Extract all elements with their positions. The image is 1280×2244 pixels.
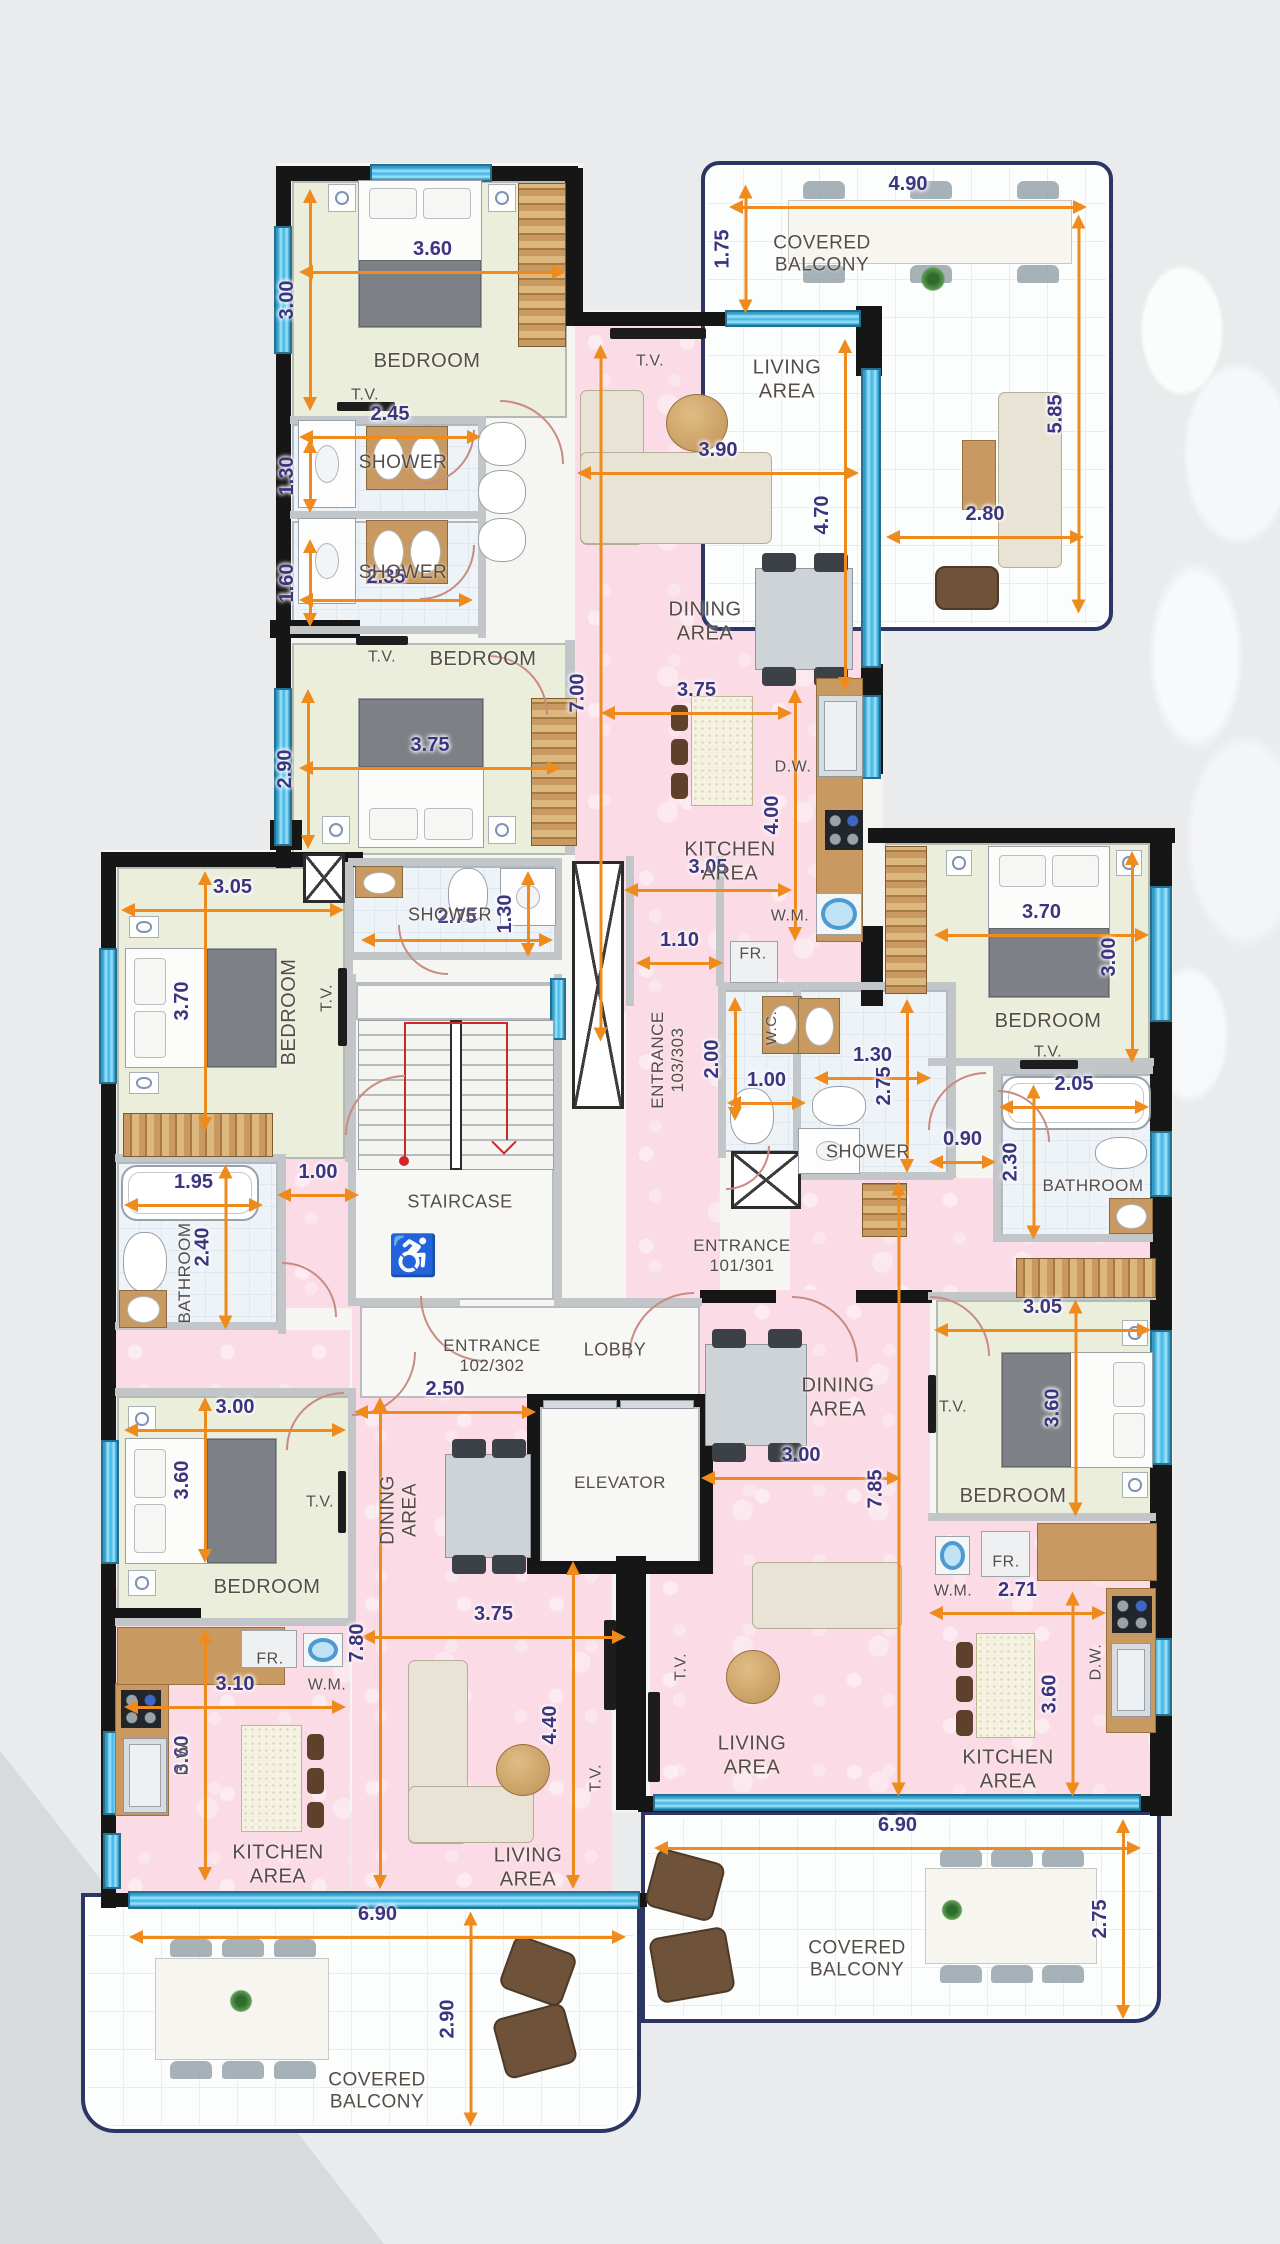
wall-black: [616, 1556, 646, 1810]
dimension-value: 3.60: [1038, 1674, 1061, 1713]
dimension-h: 0.90: [930, 1151, 995, 1173]
outdoor-chair-icon: [274, 2061, 316, 2079]
wardrobe-icon: [1016, 1258, 1156, 1298]
bed-pillow: [369, 188, 417, 219]
room-label: ENTRANCE 101/301: [693, 1236, 791, 1276]
dimension-v: 2.00: [724, 998, 746, 1120]
stair-path-start: [399, 1156, 409, 1166]
wall-gray: [993, 1234, 1153, 1242]
dimension-v: 2.75: [1112, 1820, 1134, 2018]
room-label: W.C.: [763, 1011, 781, 1046]
room-label: FR.: [992, 1554, 1019, 1573]
room-label: T.V.: [588, 1764, 607, 1792]
bed-pillow: [134, 1011, 166, 1058]
dimension-v: 7.80: [369, 1398, 391, 1888]
elevator-door: [620, 1400, 694, 1409]
dimension-value: 1.30: [276, 457, 299, 496]
dimension-value: 3.00: [782, 1444, 821, 1467]
dimension-v: 4.00: [784, 690, 806, 940]
nightstand-icon: [328, 184, 356, 212]
outdoor-chair-icon: [1042, 1965, 1084, 1983]
dimension-value: 2.71: [998, 1579, 1037, 1602]
island-stool-icon: [671, 739, 688, 765]
dining-chair-icon: [762, 553, 796, 572]
stair-rail: [450, 1020, 462, 1170]
dimension-value: 2.45: [371, 403, 410, 426]
room-label: LIVING AREA: [753, 356, 822, 403]
dimension-h: 3.75: [602, 702, 791, 724]
outdoor-chair-icon: [170, 2061, 212, 2079]
room-label: T.V.: [306, 1494, 334, 1513]
dimension-value: 1.30: [494, 895, 517, 934]
nightstand-icon: [946, 850, 972, 876]
wheelchair-icon: ♿: [388, 1236, 438, 1276]
elevator-door: [543, 1400, 617, 1409]
dimension-h: 1.10: [637, 952, 722, 974]
tv-unit-icon: [338, 1471, 346, 1533]
stair-path-line: [404, 1022, 508, 1024]
washer-drum-icon: [821, 898, 857, 930]
kitchen-counter-icon: [1037, 1523, 1157, 1581]
island-stool-icon: [307, 1802, 324, 1828]
dimension-v: 3.60: [1064, 1300, 1086, 1515]
room-label: LIVING AREA: [494, 1844, 563, 1891]
window: [103, 1833, 121, 1889]
bed-pillow: [369, 808, 418, 840]
room-label: BATHROOM: [175, 1223, 195, 1324]
island-stool-icon: [671, 773, 688, 799]
dimension-v: 3.00: [1121, 852, 1143, 1062]
window: [1150, 886, 1172, 1022]
room-label: D.W.: [1088, 1644, 1107, 1681]
nightstand-icon: [129, 1072, 159, 1094]
room-label: BEDROOM: [430, 648, 537, 672]
wall-black: [868, 828, 1175, 843]
outdoor-chair-icon: [940, 1965, 982, 1983]
bed-pillow: [134, 1504, 166, 1553]
armchair-icon: [935, 566, 999, 610]
bed-pillow: [1052, 855, 1100, 887]
room-label: BEDROOM: [995, 1010, 1102, 1034]
stove-icon: [1112, 1596, 1152, 1633]
dimension-value: 3.10: [216, 1673, 255, 1696]
plant-icon: [940, 1898, 964, 1922]
dimension-value: 3.75: [411, 734, 450, 757]
dimension-value: 3.00: [216, 1396, 255, 1419]
dimension-h: 3.75: [362, 1626, 625, 1648]
dimension-value: 1.00: [747, 1069, 786, 1092]
window: [861, 368, 881, 668]
bed-pillow: [1113, 1362, 1145, 1407]
dimension-value: 2.30: [999, 1142, 1022, 1181]
room-label: D.W.: [775, 759, 812, 778]
window: [101, 1440, 119, 1564]
dimension-v: 2.90: [297, 690, 319, 848]
nightstand-icon: [488, 184, 516, 212]
wardrobe-icon: [885, 846, 927, 994]
nightstand-icon: [128, 1570, 156, 1596]
dining-chair-icon: [492, 1439, 526, 1458]
dimension-h: 1.95: [125, 1194, 262, 1216]
room-label: DINING AREA: [669, 598, 742, 645]
kitchen-island-icon: [241, 1725, 302, 1832]
dimension-v: 2.90: [459, 1912, 481, 2125]
dimension-v: 1.30: [299, 440, 321, 512]
dimension-value: 1.30: [853, 1044, 892, 1067]
sink-basin-icon: [127, 1296, 160, 1322]
dimension-h: 1.00: [278, 1184, 358, 1206]
tv-unit-icon: [338, 968, 347, 1046]
bed-pillow: [134, 958, 166, 1005]
sink-basin-icon: [1116, 1204, 1147, 1229]
room-label: T.V.: [351, 387, 379, 406]
nightstand-icon: [488, 816, 516, 844]
room-label: W.M.: [308, 1677, 346, 1696]
shaft-void: [303, 853, 345, 903]
dimension-value: 2.05: [1055, 1073, 1094, 1096]
dimension-v: 7.00: [589, 345, 611, 1040]
dimension-value: 3.70: [171, 982, 194, 1021]
dimension-v: 4.40: [562, 1562, 584, 1888]
dimension-value: 7.80: [346, 1624, 369, 1663]
dimension-v: 1.75: [734, 185, 756, 312]
dimension-h: 2.35: [300, 589, 472, 611]
nightstand-icon: [322, 816, 350, 844]
window: [99, 948, 117, 1084]
dimension-value: 3.75: [474, 1603, 513, 1626]
dining-chair-icon: [452, 1439, 486, 1458]
plant-icon: [228, 1988, 254, 2014]
dimension-v: 4.70: [834, 340, 856, 690]
toilet-icon: [1095, 1137, 1147, 1169]
dimension-v: 3.60: [194, 1630, 216, 1880]
dimension-value: 3.75: [677, 679, 716, 702]
dimension-value: 1.00: [299, 1161, 338, 1184]
toilet-icon: [812, 1086, 866, 1126]
room-label: DINING AREA: [378, 1475, 423, 1545]
dimension-v: 1.60: [299, 540, 321, 626]
room-label: T.V.: [319, 984, 338, 1012]
room-label: T.V.: [673, 1653, 692, 1681]
bed-pillow: [999, 855, 1047, 887]
dining-chair-icon: [492, 1555, 526, 1574]
room-label: ENTRANCE 103/303: [648, 1011, 688, 1109]
dimension-h: 3.90: [578, 462, 858, 484]
outdoor-chair-icon: [222, 2061, 264, 2079]
island-stool-icon: [307, 1768, 324, 1794]
dimension-v: 3.60: [1061, 1592, 1083, 1795]
bed-pillow: [1113, 1413, 1145, 1458]
dimension-v: 5.85: [1067, 215, 1089, 612]
room-label: BEDROOM: [214, 1576, 321, 1600]
vanity-sink-icon: [798, 998, 840, 1054]
room-label: BEDROOM: [278, 959, 302, 1066]
dimension-value: 3.90: [699, 439, 738, 462]
dimension-value: 6.90: [878, 1814, 917, 1837]
room-label: T.V.: [636, 353, 664, 372]
room-label: COVERED BALCONY: [773, 233, 870, 278]
window: [653, 1794, 1141, 1811]
dimension-value: 3.60: [413, 238, 452, 261]
nightstand-icon: [1122, 1472, 1148, 1498]
room-label: FR.: [739, 946, 766, 965]
room-label: FR.: [256, 1651, 283, 1670]
wall-black: [700, 1290, 776, 1303]
dimension-v: 7.85: [887, 1182, 909, 1795]
dimension-value: 1.60: [276, 564, 299, 603]
dimension-value: 1.75: [711, 229, 734, 268]
kitchen-sink-icon: [123, 1738, 167, 1813]
tv-unit-icon: [928, 1375, 936, 1433]
room-label: KITCHEN AREA: [962, 1746, 1053, 1793]
vanity-sink-icon: [1109, 1198, 1153, 1234]
bed-blanket: [207, 949, 276, 1067]
wall-gray: [928, 1513, 1156, 1521]
toilet-icon: [478, 518, 526, 562]
wall-gray: [348, 1388, 356, 1628]
dining-chair-icon: [712, 1443, 746, 1462]
dimension-value: 2.75: [1089, 1900, 1112, 1939]
room-label: ENTRANCE 102/302: [443, 1336, 541, 1376]
dining-chair-icon: [712, 1329, 746, 1348]
room-label: KITCHEN AREA: [684, 838, 775, 885]
dining-chair-icon: [762, 667, 796, 686]
dimension-value: 2.80: [966, 503, 1005, 526]
bed-pillow: [424, 808, 473, 840]
room-label: BEDROOM: [374, 350, 481, 374]
dimension-v: 3.70: [194, 872, 216, 1130]
dimension-h: 3.05: [122, 899, 343, 921]
vanity-sink-icon: [355, 866, 403, 898]
room-label: ELEVATOR: [574, 1473, 666, 1493]
dimension-value: 3.60: [171, 1461, 194, 1500]
room-label: STAIRCASE: [407, 1191, 512, 1212]
island-stool-icon: [956, 1642, 973, 1668]
round-table-icon: [726, 1650, 780, 1704]
dimension-v: 1.30: [517, 872, 539, 956]
island-stool-icon: [956, 1676, 973, 1702]
room-label: T.V.: [368, 649, 396, 668]
room-label: SHOWER: [408, 904, 492, 925]
washing-machine-icon: [816, 893, 862, 935]
dimension-value: 1.10: [660, 929, 699, 952]
room-label: BATHROOM: [1043, 1176, 1144, 1196]
tv-unit-icon: [356, 636, 408, 645]
room-label: W.M.: [771, 908, 809, 927]
washing-machine-icon: [303, 1633, 343, 1667]
dimension-h: 3.60: [300, 261, 565, 283]
washer-drum-icon: [940, 1541, 965, 1570]
round-table-icon: [496, 1744, 550, 1796]
circulation-floor: [356, 984, 554, 1020]
armchair-icon: [648, 1926, 736, 2005]
stair-path-line: [506, 1022, 508, 1140]
dimension-h: 2.80: [887, 526, 1083, 548]
dimension-value: 2.00: [701, 1040, 724, 1079]
vanity-sink-icon: [119, 1290, 167, 1328]
room-label: KITCHEN AREA: [232, 1841, 323, 1888]
dimension-value: 4.90: [889, 173, 928, 196]
dimension-value: 4.40: [539, 1706, 562, 1745]
room-label: W.M.: [934, 1583, 972, 1602]
sofa-icon: [752, 1562, 902, 1629]
dimension-h: 6.90: [655, 1837, 1140, 1859]
island-stool-icon: [307, 1734, 324, 1760]
plant-icon: [918, 266, 948, 292]
toilet-icon: [123, 1232, 167, 1292]
room-label: T.V.: [1034, 1044, 1062, 1063]
dimension-value: 2.90: [436, 1999, 459, 2038]
island-stool-icon: [956, 1710, 973, 1736]
dimension-value: 4.70: [811, 496, 834, 535]
room-label: D.W.: [175, 1739, 194, 1776]
wall-black: [565, 312, 733, 326]
dimension-v: 3.00: [299, 190, 321, 410]
dimension-h: 4.90: [730, 196, 1086, 218]
room-label: COVERED BALCONY: [328, 2070, 425, 2115]
wall-black: [861, 926, 883, 1006]
room-label: COVERED BALCONY: [808, 1938, 905, 1983]
sink-basin-icon: [805, 1007, 834, 1046]
dimension-value: 2.90: [274, 750, 297, 789]
tv-unit-icon: [610, 328, 706, 339]
wall-gray: [115, 1388, 351, 1396]
dimension-h: 3.75: [300, 757, 560, 779]
dimension-value: 3.60: [1041, 1388, 1064, 1427]
outdoor-chair-icon: [1017, 265, 1059, 283]
dimension-value: 7.85: [864, 1469, 887, 1508]
wall-black: [565, 168, 583, 326]
dimension-value: 3.00: [1098, 938, 1121, 977]
outdoor-chair-icon: [991, 1965, 1033, 1983]
kitchen-island-icon: [976, 1633, 1035, 1738]
kitchen-sink-icon: [818, 695, 863, 777]
washer-drum-icon: [308, 1638, 338, 1662]
dining-chair-icon: [452, 1555, 486, 1574]
dimension-v: 2.30: [1022, 1085, 1044, 1238]
stove-icon: [825, 810, 863, 850]
wall-gray: [290, 626, 482, 634]
floor-plan-canvas: 3.602.452.353.753.904.902.803.753.051.10…: [0, 0, 1280, 2244]
dimension-value: 1.95: [174, 1171, 213, 1194]
tv-unit-icon: [648, 1692, 660, 1782]
wall-black: [527, 1561, 713, 1574]
dimension-h: 3.00: [125, 1419, 345, 1441]
dimension-h: 2.45: [300, 426, 480, 448]
dimension-value: 5.85: [1044, 394, 1067, 433]
dimension-value: 2.75: [873, 1067, 896, 1106]
wall-gray: [348, 858, 562, 866]
dimension-v: 2.40: [214, 1165, 236, 1328]
dimension-h: 3.10: [125, 1696, 345, 1718]
dimension-value: 4.00: [761, 796, 784, 835]
dimension-value: 2.50: [426, 1378, 465, 1401]
window: [861, 695, 881, 779]
room-label: T.V.: [939, 1399, 967, 1418]
dimension-value: 0.90: [943, 1128, 982, 1151]
kitchen-counter-icon: [962, 440, 996, 510]
window: [1150, 1131, 1172, 1197]
window: [1150, 1330, 1172, 1465]
bed-pillow: [423, 188, 471, 219]
dimension-value: 3.05: [213, 876, 252, 899]
dimension-h: 6.90: [130, 1926, 625, 1948]
room-label: SHOWER: [359, 562, 448, 584]
kitchen-sink-icon: [1111, 1643, 1151, 1717]
bed-pillow: [134, 1449, 166, 1498]
room-label: BEDROOM: [960, 1485, 1067, 1509]
toilet-icon: [478, 470, 526, 514]
room-label: LIVING AREA: [718, 1732, 787, 1779]
floor-plan-page: 3.602.452.353.753.904.902.803.753.051.10…: [0, 0, 1280, 2244]
dimension-value: 3.05: [1023, 1296, 1062, 1319]
dimension-value: 3.00: [276, 281, 299, 320]
dimension-value: 7.00: [566, 673, 589, 712]
room-label: LOBBY: [584, 1339, 647, 1360]
dining-table-icon: [445, 1454, 531, 1558]
bed-blanket: [207, 1439, 276, 1563]
pink-floor-area: [115, 1330, 350, 1392]
washing-machine-icon: [935, 1536, 970, 1575]
room-label: DINING AREA: [802, 1374, 875, 1421]
room-label: SHOWER: [359, 452, 448, 474]
dimension-value: 6.90: [358, 1903, 397, 1926]
dimension-value: 3.70: [1022, 901, 1061, 924]
room-label: SHOWER: [826, 1141, 910, 1162]
sink-basin-icon: [363, 872, 396, 894]
dimension-h: 3.05: [935, 1319, 1150, 1341]
wall-gray: [115, 1618, 351, 1626]
dimension-v: 3.60: [194, 1398, 216, 1562]
